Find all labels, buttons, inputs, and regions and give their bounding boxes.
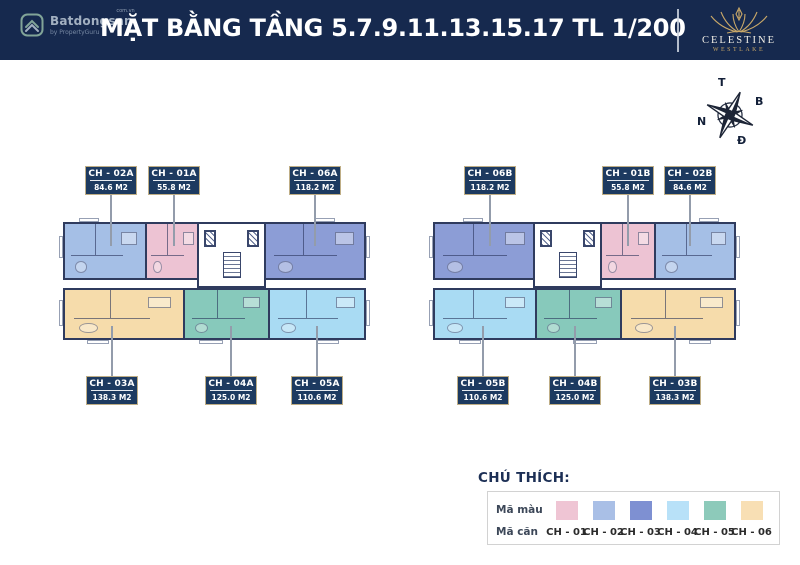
elevator-icon [540, 230, 552, 247]
balcony [736, 236, 740, 258]
legend-code-ch02: CH - 02 [583, 527, 624, 538]
compass-label-t: T [718, 76, 726, 89]
unit-tag-ch02a: CH - 02A 84.6 M2 [85, 166, 137, 195]
legend-swatch-ch03 [630, 501, 652, 520]
unit-tag-ch06b: CH - 06B 118.2 M2 [464, 166, 516, 195]
unit-tag-ch04a: CH - 04A 125.0 M2 [205, 376, 257, 405]
floorplan-left-tower [63, 222, 366, 340]
balcony [463, 218, 483, 222]
leader-line [689, 192, 691, 246]
balcony [87, 340, 109, 344]
floorplan-page: Batdongsan com.vn by PropertyGuru MẶT BẰ… [0, 0, 800, 565]
legend-color-row-label: Mã màu [496, 504, 548, 516]
left-tower-bottom-wing [63, 288, 366, 340]
leader-line [111, 326, 113, 376]
legend-swatch-ch04 [667, 501, 689, 520]
stairs-icon [559, 252, 577, 278]
right-tower-bottom-wing [433, 288, 736, 340]
leader-line [574, 326, 576, 376]
leader-line [173, 192, 175, 246]
leader-line [627, 192, 629, 246]
balcony [199, 340, 223, 344]
lotus-icon [707, 4, 771, 34]
batdongsan-house-icon [20, 13, 44, 37]
legend-code-ch03: CH - 03 [620, 527, 661, 538]
balcony [317, 340, 339, 344]
unit-tag-ch02b: CH - 02B 84.6 M2 [664, 166, 716, 195]
westlake-wordmark: WESTLAKE [693, 47, 785, 53]
compass-label-n: N [697, 115, 706, 128]
legend-code-ch04: CH - 04 [657, 527, 698, 538]
leader-line [230, 326, 232, 376]
right-tower-core [533, 222, 602, 288]
legend-code-row: Mã căn CH - 01 CH - 02 CH - 03 CH - 04 C… [496, 521, 779, 543]
legend-code-ch01: CH - 01 [546, 527, 587, 538]
balcony [429, 236, 433, 258]
unit-tag-ch01b: CH - 01B 55.8 M2 [602, 166, 654, 195]
unit-tag-ch04b: CH - 04B 125.0 M2 [549, 376, 601, 405]
leader-line [482, 326, 484, 376]
legend-color-row: Mã màu [496, 499, 779, 521]
balcony [699, 218, 719, 222]
legend-swatch-ch06 [741, 501, 763, 520]
leader-line [314, 192, 316, 246]
compass-label-d: Đ [737, 134, 746, 147]
left-tower-core [197, 222, 266, 288]
celestine-wordmark: CELESTINE [693, 35, 785, 46]
balcony [315, 218, 335, 222]
balcony [736, 300, 740, 326]
unit-tag-ch05b: CH - 05B 110.6 M2 [457, 376, 509, 405]
legend-swatch-ch01 [556, 501, 578, 520]
unit-ch01a [145, 224, 199, 278]
compass-rose: T B N Đ [689, 74, 771, 156]
legend-code-row-label: Mã căn [496, 526, 548, 538]
legend-code-ch06: CH - 06 [731, 527, 772, 538]
unit-ch05b [435, 290, 535, 338]
unit-ch03a [65, 290, 183, 338]
elevator-icon [204, 230, 216, 247]
unit-tag-ch01a: CH - 01A 55.8 M2 [148, 166, 200, 195]
unit-tag-ch05a: CH - 05A 110.6 M2 [291, 376, 343, 405]
elevator-icon [583, 230, 595, 247]
unit-ch04b [535, 290, 620, 338]
legend-swatch-ch02 [593, 501, 615, 520]
compass-label-b: B [755, 95, 763, 108]
unit-ch06b [435, 224, 535, 278]
legend-box: Mã màu Mã căn CH - 01 CH - 02 CH - 03 CH… [487, 491, 780, 545]
unit-tag-ch06a: CH - 06A 118.2 M2 [289, 166, 341, 195]
legend-code-ch05: CH - 05 [694, 527, 735, 538]
elevator-icon [247, 230, 259, 247]
balcony [573, 340, 597, 344]
page-title: MẶT BẰNG TẦNG 5.7.9.11.13.15.17 TL 1/200 [100, 14, 645, 42]
stairs-icon [223, 252, 241, 278]
balcony [59, 300, 63, 326]
leader-line [110, 192, 112, 246]
header-bar: Batdongsan com.vn by PropertyGuru MẶT BẰ… [0, 0, 800, 60]
balcony [79, 218, 99, 222]
unit-tag-ch03a: CH - 03A 138.3 M2 [86, 376, 138, 405]
unit-ch02b [654, 224, 734, 278]
leader-line [489, 192, 491, 246]
legend-swatch-ch05 [704, 501, 726, 520]
balcony [459, 340, 481, 344]
unit-ch03b [620, 290, 734, 338]
leader-line [316, 326, 318, 376]
balcony [366, 300, 370, 326]
unit-tag-ch03b: CH - 03B 138.3 M2 [649, 376, 701, 405]
balcony [429, 300, 433, 326]
balcony [689, 340, 711, 344]
balcony [59, 236, 63, 258]
leader-line [674, 326, 676, 376]
unit-ch04a [183, 290, 268, 338]
unit-ch02a [65, 224, 145, 278]
legend-title: CHÚ THÍCH: [478, 470, 570, 486]
balcony [366, 236, 370, 258]
header-separator [677, 9, 679, 52]
celestine-logo: CELESTINE WESTLAKE [693, 4, 785, 53]
